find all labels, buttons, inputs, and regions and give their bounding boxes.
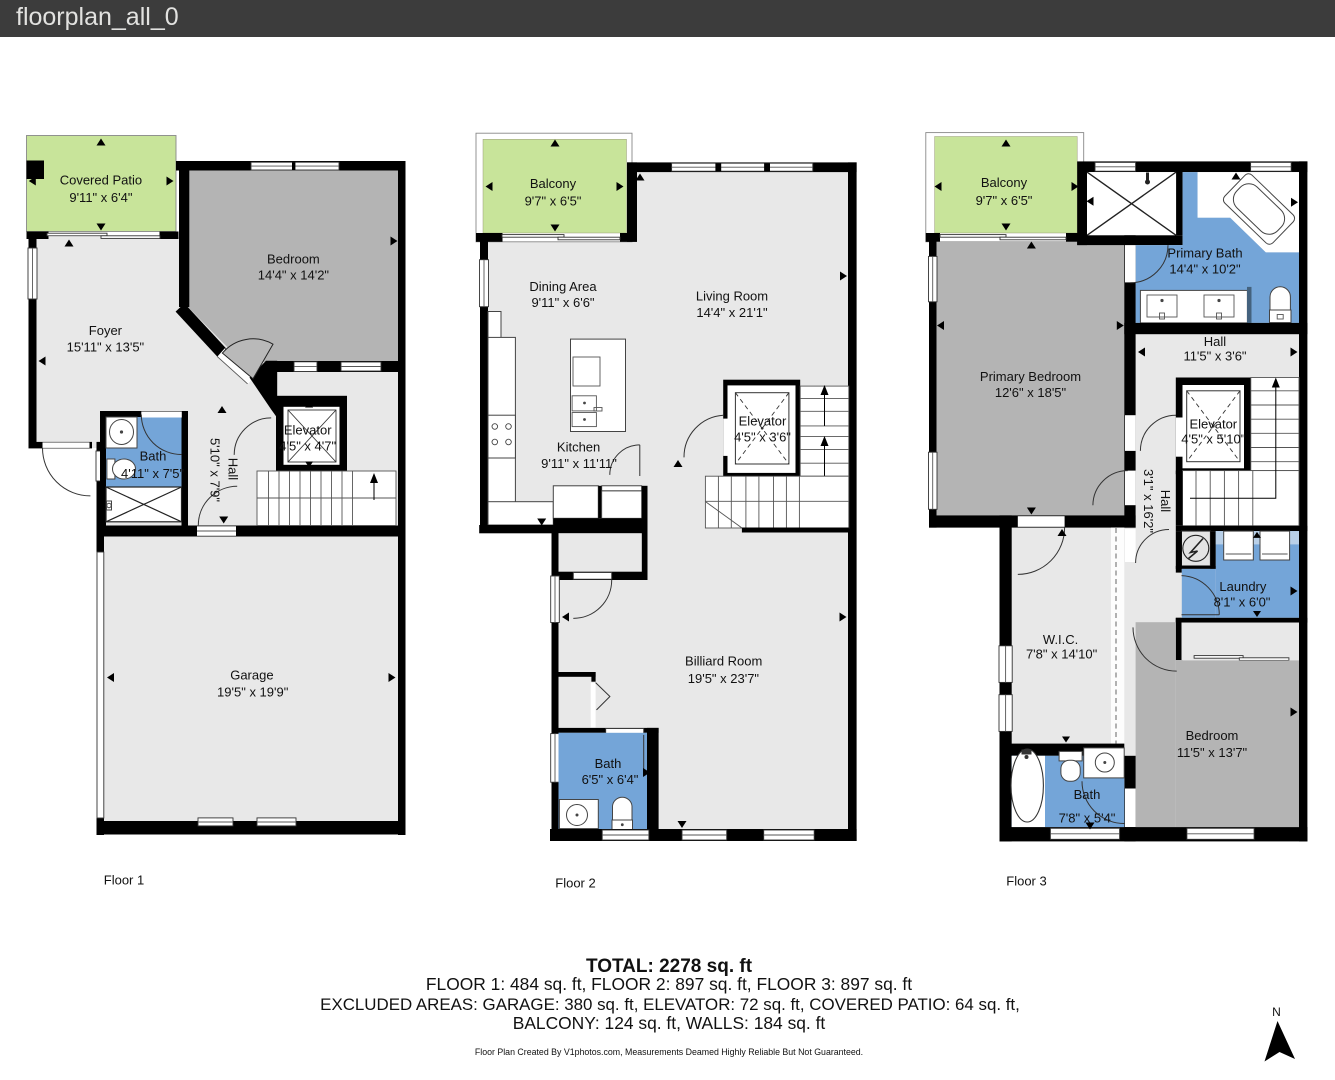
svg-text:Hall: Hall bbox=[1158, 490, 1173, 513]
svg-text:EXCLUDED AREAS: GARAGE: 380 sq: EXCLUDED AREAS: GARAGE: 380 sq. ft, ELEV… bbox=[320, 995, 1020, 1014]
svg-text:9'7" x 6'5": 9'7" x 6'5" bbox=[525, 194, 582, 209]
svg-text:4'11" x 7'5": 4'11" x 7'5" bbox=[121, 466, 184, 481]
svg-text:Dining Area: Dining Area bbox=[529, 279, 597, 294]
svg-text:Primary Bath: Primary Bath bbox=[1167, 245, 1242, 260]
svg-text:Bedroom: Bedroom bbox=[1186, 728, 1239, 743]
svg-text:Billiard Room: Billiard Room bbox=[685, 654, 762, 669]
svg-text:Floor Plan Created By V1photos: Floor Plan Created By V1photos.com, Meas… bbox=[475, 1047, 863, 1057]
svg-text:4'5" x 5'10": 4'5" x 5'10" bbox=[1181, 432, 1245, 447]
svg-text:N: N bbox=[1272, 1005, 1281, 1019]
svg-text:Floor 3: Floor 3 bbox=[1006, 874, 1046, 889]
svg-text:3'1" x 16'2": 3'1" x 16'2" bbox=[1141, 469, 1156, 533]
svg-text:4'5" x 3'6": 4'5" x 3'6" bbox=[734, 430, 791, 445]
svg-text:Laundry: Laundry bbox=[1219, 579, 1266, 594]
svg-text:14'4" x 14'2": 14'4" x 14'2" bbox=[258, 267, 330, 282]
svg-text:Living Room: Living Room bbox=[696, 289, 768, 304]
svg-text:Foyer: Foyer bbox=[89, 323, 123, 338]
svg-text:7'8" x 14'10": 7'8" x 14'10" bbox=[1026, 646, 1098, 661]
svg-text:14'4" x 10'2": 14'4" x 10'2" bbox=[1169, 262, 1241, 277]
svg-text:Hall: Hall bbox=[1204, 334, 1227, 349]
svg-text:Floor 1: Floor 1 bbox=[104, 873, 144, 888]
svg-text:Elevator: Elevator bbox=[284, 423, 332, 438]
svg-text:BALCONY: 124 sq. ft, WALLS: 18: BALCONY: 124 sq. ft, WALLS: 184 sq. ft bbox=[513, 1013, 826, 1033]
svg-text:Elevator: Elevator bbox=[1189, 416, 1237, 431]
svg-text:Covered Patio: Covered Patio bbox=[60, 173, 142, 188]
svg-text:Balcony: Balcony bbox=[981, 175, 1028, 190]
svg-text:5'10" x 7'9": 5'10" x 7'9" bbox=[207, 438, 222, 502]
svg-text:11'5" x 3'6": 11'5" x 3'6" bbox=[1183, 349, 1246, 364]
svg-text:4'5" x 4'7": 4'5" x 4'7" bbox=[279, 439, 336, 454]
svg-text:6'5" x 6'4": 6'5" x 6'4" bbox=[582, 772, 639, 787]
svg-text:15'11" x 13'5": 15'11" x 13'5" bbox=[67, 340, 145, 355]
svg-text:floorplan_all_0: floorplan_all_0 bbox=[16, 3, 179, 31]
svg-text:19'5" x 19'9": 19'5" x 19'9" bbox=[217, 684, 289, 699]
svg-text:Bath: Bath bbox=[595, 756, 622, 771]
svg-text:Bath: Bath bbox=[1074, 787, 1101, 802]
svg-text:Balcony: Balcony bbox=[530, 176, 577, 191]
svg-text:FLOOR 1: 484 sq. ft, FLOOR 2:: FLOOR 1: 484 sq. ft, FLOOR 2: 897 sq. ft… bbox=[426, 974, 912, 994]
svg-text:Bath: Bath bbox=[140, 449, 167, 464]
svg-text:9'11" x 6'6": 9'11" x 6'6" bbox=[531, 295, 594, 310]
svg-text:12'6" x 18'5": 12'6" x 18'5" bbox=[995, 385, 1067, 400]
svg-text:Elevator: Elevator bbox=[739, 414, 787, 429]
svg-text:Bedroom: Bedroom bbox=[267, 252, 320, 267]
svg-text:14'4" x 21'1": 14'4" x 21'1" bbox=[696, 305, 768, 320]
svg-text:Hall: Hall bbox=[225, 458, 240, 481]
svg-text:Primary Bedroom: Primary Bedroom bbox=[980, 369, 1081, 384]
svg-text:Floor 2: Floor 2 bbox=[555, 876, 595, 891]
svg-text:Garage: Garage bbox=[230, 668, 273, 683]
svg-text:W.I.C.: W.I.C. bbox=[1043, 632, 1078, 647]
svg-text:9'7" x 6'5": 9'7" x 6'5" bbox=[976, 193, 1033, 208]
svg-text:Kitchen: Kitchen bbox=[557, 440, 600, 455]
svg-text:9'11" x 6'4": 9'11" x 6'4" bbox=[69, 190, 132, 205]
svg-text:11'5" x 13'7": 11'5" x 13'7" bbox=[1177, 745, 1248, 760]
svg-text:19'5" x 23'7": 19'5" x 23'7" bbox=[688, 671, 760, 686]
svg-text:8'1" x 6'0": 8'1" x 6'0" bbox=[1214, 595, 1271, 610]
svg-text:9'11" x 11'11": 9'11" x 11'11" bbox=[541, 456, 617, 471]
